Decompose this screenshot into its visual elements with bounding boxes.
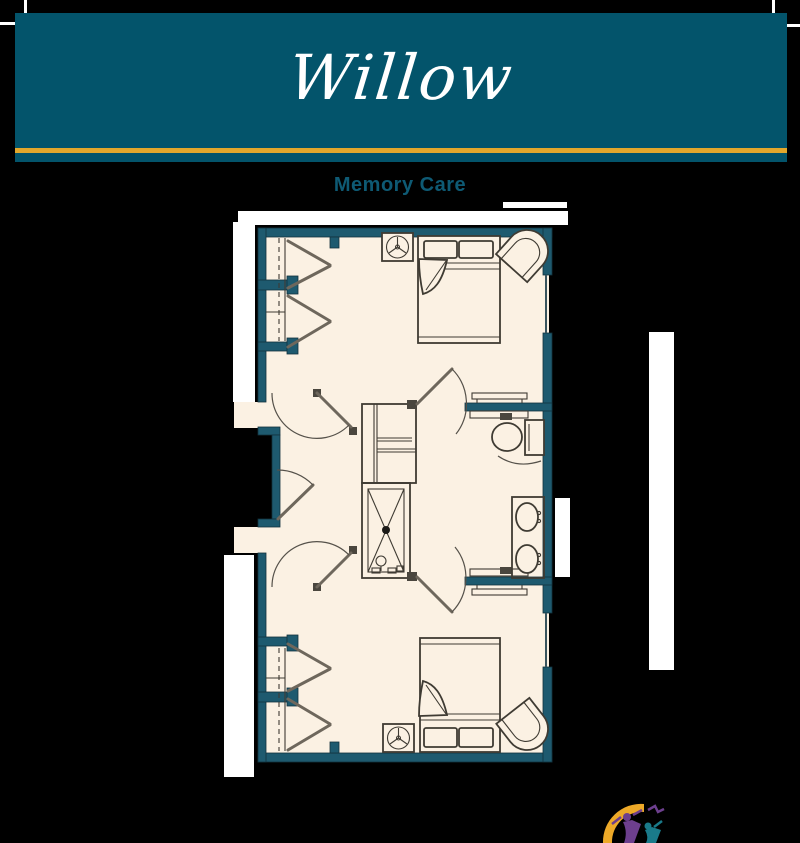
shower-drain [382, 526, 390, 534]
ceiling-fan-icon-bottom [383, 724, 414, 752]
ceiling-fan-icon-top [382, 233, 413, 261]
floorplan-drawing [0, 0, 800, 843]
bed-top-bedroom [418, 236, 500, 343]
community-logo [603, 804, 664, 843]
floorplan-poster: Willow Memory Care [0, 0, 800, 843]
bed-bottom-bedroom [419, 638, 500, 752]
logo-bird [648, 806, 664, 812]
